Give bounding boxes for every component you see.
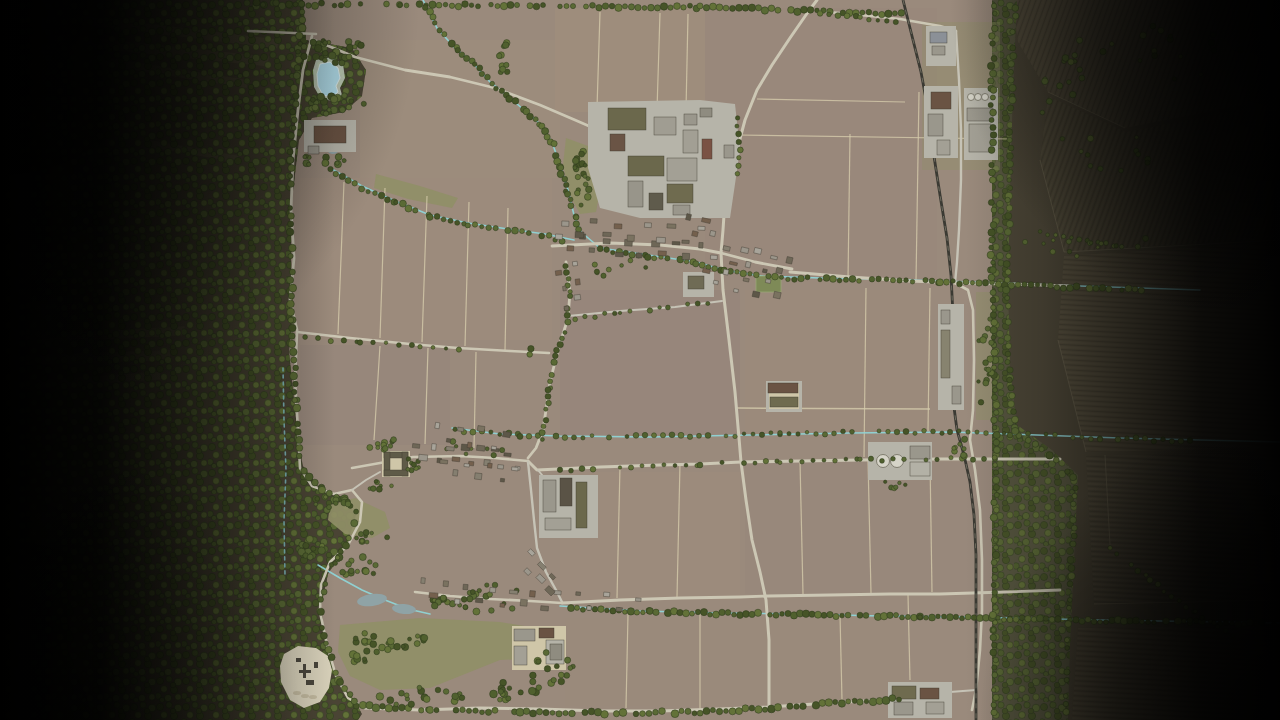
tree — [774, 704, 781, 711]
house — [603, 239, 610, 244]
tree — [546, 233, 552, 239]
tree — [910, 279, 915, 284]
tree — [957, 429, 961, 433]
tree — [558, 678, 565, 685]
tree — [455, 220, 460, 225]
tree — [358, 42, 365, 49]
tree — [346, 535, 351, 540]
tree — [553, 353, 559, 359]
tree — [611, 250, 615, 254]
tree — [564, 182, 569, 187]
tree — [1147, 577, 1153, 583]
house — [745, 261, 751, 268]
tree — [288, 133, 294, 139]
tree — [815, 611, 822, 618]
tree — [729, 708, 736, 715]
tree — [320, 632, 327, 639]
tree — [1007, 377, 1013, 383]
tree — [725, 610, 731, 616]
tree — [989, 611, 996, 618]
tree — [736, 139, 741, 144]
tree — [1070, 541, 1076, 547]
tree — [311, 2, 318, 9]
tree — [550, 710, 555, 715]
tree — [877, 429, 881, 433]
tree — [546, 400, 552, 406]
tree — [1009, 393, 1015, 399]
tree — [565, 657, 571, 663]
tree — [1008, 61, 1015, 68]
tree — [1025, 616, 1032, 623]
tree — [290, 109, 296, 115]
tree — [604, 247, 610, 253]
tree — [1133, 435, 1139, 441]
tree — [443, 689, 449, 695]
tree — [1119, 244, 1124, 249]
tree — [574, 215, 579, 220]
tree — [652, 256, 657, 261]
house — [454, 599, 460, 605]
tree — [366, 190, 370, 194]
tree — [1065, 646, 1070, 651]
tree — [289, 140, 297, 148]
tree — [1004, 245, 1011, 252]
tree — [453, 707, 459, 713]
tree — [1089, 241, 1093, 245]
tree — [434, 214, 440, 220]
tree — [618, 466, 621, 469]
tree — [960, 616, 965, 621]
building — [700, 108, 712, 117]
tree — [328, 339, 333, 344]
tree — [454, 445, 458, 449]
tree — [582, 709, 588, 715]
tree — [1072, 493, 1077, 498]
tree — [971, 615, 977, 621]
tree — [992, 380, 998, 386]
tree — [844, 13, 850, 19]
house — [723, 269, 729, 275]
tree — [291, 357, 297, 363]
tree — [884, 480, 887, 483]
tree — [1241, 622, 1246, 627]
tree — [1100, 48, 1106, 54]
tree — [606, 267, 611, 272]
tree — [924, 458, 928, 462]
tree — [1007, 105, 1013, 111]
tree — [628, 465, 633, 470]
tree — [323, 50, 329, 56]
house — [477, 426, 485, 432]
tree — [575, 174, 580, 179]
tree — [387, 638, 394, 645]
tree — [1088, 164, 1093, 169]
tree — [480, 225, 484, 229]
house — [710, 230, 716, 236]
tree — [324, 495, 328, 499]
tree — [1067, 249, 1072, 254]
tree — [648, 4, 655, 11]
tree — [713, 611, 720, 618]
tree — [982, 280, 988, 286]
tree — [833, 699, 838, 704]
tree — [1168, 34, 1172, 38]
tree — [385, 646, 391, 652]
tree — [345, 501, 351, 507]
tree — [940, 431, 944, 435]
tree — [1007, 178, 1012, 183]
building — [514, 646, 527, 665]
tree — [431, 346, 435, 350]
building — [952, 386, 961, 404]
tree — [362, 657, 366, 661]
tree — [305, 473, 313, 481]
tree — [1035, 283, 1040, 288]
house — [672, 241, 680, 245]
tree — [819, 700, 826, 707]
tree — [990, 297, 996, 303]
tree — [1163, 618, 1170, 625]
house — [765, 279, 771, 284]
tree — [992, 642, 998, 648]
tree — [1135, 568, 1141, 574]
tree — [1013, 13, 1019, 19]
tree — [490, 690, 498, 698]
tree — [541, 424, 546, 429]
tree — [644, 265, 648, 269]
tree — [748, 272, 753, 277]
tree — [958, 442, 962, 446]
tree — [953, 614, 958, 619]
tree — [991, 207, 997, 213]
tree — [642, 432, 648, 438]
tree — [1119, 168, 1124, 173]
tree — [653, 609, 659, 615]
tree — [724, 434, 728, 438]
tree — [574, 190, 580, 196]
tree — [1007, 137, 1012, 142]
tree — [1150, 23, 1156, 29]
tree — [1110, 42, 1115, 47]
tree — [952, 446, 956, 450]
tree — [786, 277, 790, 281]
tree — [837, 278, 842, 283]
tree — [1055, 616, 1062, 623]
tree — [634, 610, 639, 615]
house — [491, 446, 496, 450]
tree — [911, 614, 918, 621]
tree — [1067, 556, 1074, 563]
tree — [301, 468, 308, 475]
house — [682, 253, 690, 260]
tree — [962, 436, 968, 442]
tree — [992, 567, 998, 573]
tree — [288, 181, 295, 188]
tree — [517, 433, 523, 439]
tree — [748, 4, 755, 11]
tree — [1005, 197, 1010, 202]
tree — [623, 610, 628, 615]
house — [554, 590, 561, 595]
tree — [421, 634, 428, 641]
tree — [564, 312, 570, 318]
tree — [827, 12, 832, 17]
tree — [1133, 617, 1140, 624]
tree — [560, 336, 565, 341]
house — [453, 469, 458, 476]
tree — [414, 641, 420, 647]
tree — [544, 407, 548, 411]
tree — [568, 203, 574, 209]
house — [421, 578, 426, 584]
building — [932, 46, 945, 55]
tree — [965, 614, 971, 620]
tree — [310, 97, 315, 102]
tree — [498, 432, 502, 436]
tree — [749, 705, 755, 711]
tree — [988, 147, 995, 154]
house — [500, 478, 504, 482]
tree — [989, 237, 995, 243]
house — [636, 253, 642, 258]
tree — [363, 530, 369, 536]
tree — [685, 708, 691, 714]
tree — [993, 538, 998, 543]
tree — [339, 60, 345, 66]
tree — [456, 347, 461, 352]
tree — [291, 84, 298, 91]
tree — [485, 447, 489, 451]
tree — [1193, 618, 1199, 624]
tree — [286, 1, 293, 8]
tree — [1049, 617, 1055, 623]
house — [500, 603, 505, 607]
tree — [568, 293, 573, 298]
tree — [1073, 283, 1080, 290]
tree — [769, 431, 773, 435]
building — [941, 330, 950, 378]
building — [610, 134, 625, 151]
quarry-pile — [293, 691, 301, 695]
tree — [1096, 246, 1099, 249]
tree — [1008, 77, 1014, 83]
tree — [372, 704, 380, 712]
tree — [1009, 84, 1016, 91]
tree — [662, 463, 666, 467]
tree — [408, 701, 414, 707]
tree — [1006, 220, 1013, 227]
field-parcel-tint — [565, 618, 905, 706]
house — [564, 306, 569, 311]
tree — [416, 1, 423, 8]
tree — [480, 710, 485, 715]
building — [550, 644, 562, 660]
tree — [1098, 620, 1103, 625]
tree — [984, 431, 989, 436]
tree — [1146, 620, 1151, 625]
tree — [1177, 599, 1181, 603]
tree — [579, 203, 583, 207]
tree — [299, 9, 304, 14]
house — [575, 279, 580, 285]
tree — [800, 460, 804, 464]
tree — [399, 704, 406, 711]
tree — [893, 613, 898, 618]
tree — [1178, 54, 1183, 59]
house — [635, 598, 641, 602]
tree — [1144, 573, 1148, 577]
tree — [766, 273, 771, 278]
house — [429, 592, 438, 598]
tree — [315, 497, 320, 502]
tree — [333, 670, 339, 676]
tree — [288, 293, 294, 299]
tree — [443, 2, 448, 7]
tree — [879, 11, 885, 17]
tree — [753, 272, 759, 278]
building — [926, 702, 944, 714]
tree — [596, 5, 602, 11]
silo — [982, 94, 989, 101]
tree — [323, 582, 328, 587]
house — [555, 270, 562, 275]
tree — [1009, 69, 1014, 74]
tree — [1028, 282, 1034, 288]
tree — [314, 502, 318, 506]
building — [937, 140, 950, 155]
tree — [1080, 435, 1084, 439]
tree — [990, 139, 997, 146]
tree — [1032, 441, 1038, 447]
tree — [573, 221, 579, 227]
tree — [800, 703, 807, 710]
tree — [486, 225, 492, 231]
tree — [976, 280, 982, 286]
tree — [291, 117, 297, 123]
tree — [579, 466, 585, 472]
tree — [288, 317, 294, 323]
house — [786, 257, 793, 265]
tree — [991, 560, 997, 566]
tree — [692, 711, 697, 716]
house — [614, 224, 622, 229]
tree — [328, 654, 335, 661]
tree — [754, 609, 761, 616]
tree — [312, 479, 319, 486]
tree — [553, 433, 559, 439]
tree — [846, 699, 851, 704]
tree — [1054, 285, 1060, 291]
tree — [1187, 438, 1193, 444]
tree — [994, 447, 1001, 454]
tree — [449, 3, 454, 8]
tree — [1234, 621, 1241, 628]
quarry-structure — [296, 658, 301, 662]
house — [457, 427, 464, 432]
tree — [1169, 439, 1174, 444]
tree — [802, 610, 809, 617]
tree — [1007, 617, 1013, 623]
tree — [294, 65, 300, 71]
tree — [773, 612, 779, 618]
tree — [603, 311, 607, 315]
tree — [288, 206, 293, 211]
tree — [993, 694, 999, 700]
tree — [990, 267, 997, 274]
tree — [787, 432, 791, 436]
tree — [318, 547, 326, 555]
tree — [898, 10, 905, 17]
tree — [408, 637, 412, 641]
building — [724, 145, 734, 158]
tree — [336, 678, 343, 685]
tree — [1065, 621, 1072, 628]
tree — [988, 229, 995, 236]
tree — [1169, 594, 1174, 599]
tree — [545, 394, 551, 400]
tree — [787, 703, 793, 709]
house — [589, 248, 595, 253]
tree — [1064, 669, 1070, 675]
tree — [994, 507, 1000, 513]
tree — [540, 437, 544, 441]
tree — [527, 113, 534, 120]
building — [930, 32, 947, 43]
tree — [1063, 694, 1068, 699]
tree — [1115, 552, 1119, 556]
tree — [357, 340, 362, 345]
quarry-pile — [301, 694, 309, 698]
tree — [1129, 563, 1133, 567]
tree — [822, 458, 826, 462]
tree — [992, 665, 997, 670]
tree — [733, 434, 737, 438]
tree — [539, 233, 545, 239]
tree — [592, 262, 597, 267]
tree — [353, 45, 357, 49]
map-canvas[interactable] — [0, 0, 1280, 720]
tree — [296, 436, 303, 443]
tree — [568, 197, 573, 202]
tree — [563, 270, 569, 276]
house — [541, 606, 549, 611]
tree — [1007, 367, 1013, 373]
tree — [712, 266, 718, 272]
tree — [992, 365, 997, 370]
tree — [287, 156, 294, 163]
house — [412, 444, 420, 449]
tree — [371, 340, 376, 345]
tree — [573, 166, 577, 170]
tree — [584, 194, 591, 201]
tree — [690, 611, 695, 616]
tree — [876, 276, 882, 282]
tree — [988, 200, 994, 206]
tree — [324, 641, 329, 646]
tree — [476, 4, 481, 9]
tree — [991, 597, 997, 603]
tree — [1097, 437, 1102, 442]
tree — [498, 697, 503, 702]
tree — [512, 98, 519, 105]
tree — [1008, 145, 1014, 151]
tree — [609, 3, 615, 9]
tree — [565, 191, 571, 197]
tree — [373, 191, 378, 196]
tree — [988, 102, 993, 107]
tree — [886, 429, 891, 434]
tree — [485, 709, 491, 715]
